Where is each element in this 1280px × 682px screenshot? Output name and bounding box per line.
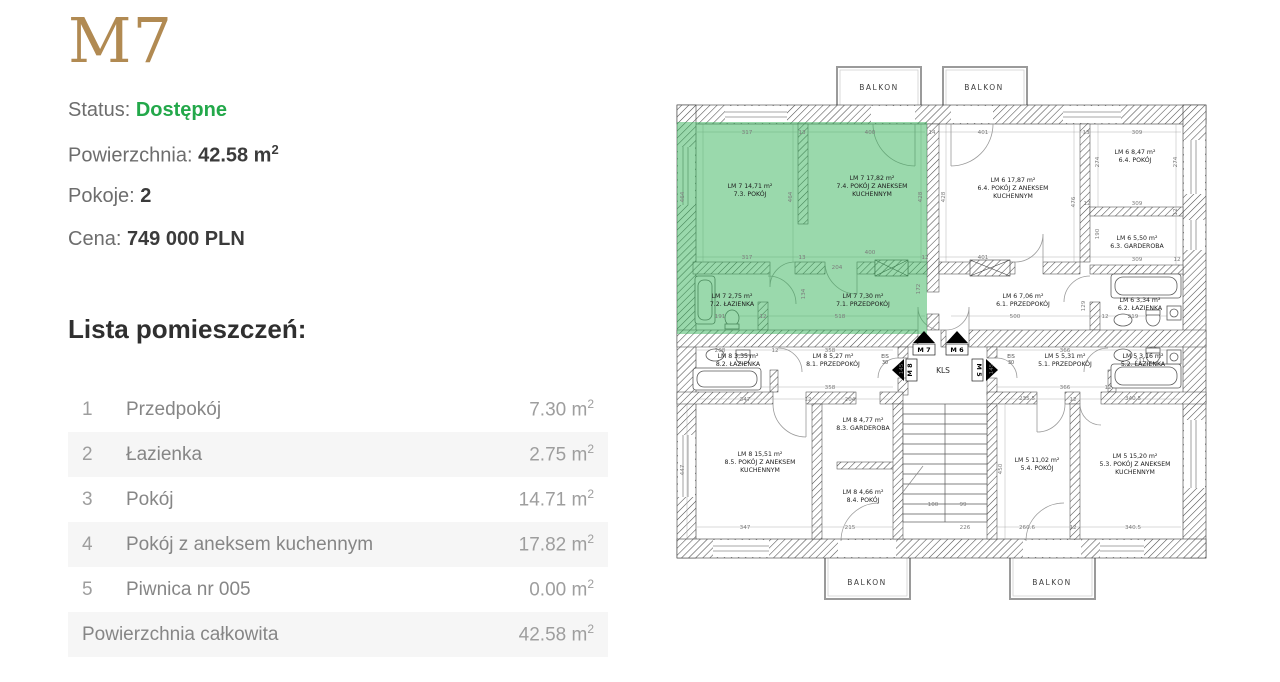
room-label: 6.1. PRZEDPOKÓJ [996,299,1050,308]
dimension-label: 400 [865,250,876,256]
dimension-label: 190 [1095,228,1101,239]
table-row: 5 Piwnica nr 005 0.00 m2 [68,567,608,612]
dimension-label: 447 [680,464,686,475]
room-label: 8.5. POKÓJ Z ANEKSEM [725,457,796,466]
dimension-label: 428 [941,191,947,202]
dimension-label: 12 [1069,397,1076,403]
area-line: Powierzchnia: 42.58 m2 [68,142,608,168]
room-label: LM 5 11,02 m² [1015,457,1060,464]
dimension-label: 191 [715,314,726,320]
total-area: 42.58 m2 [519,622,594,646]
dimension-label: 518 [835,314,846,320]
room-label: LM 7 17,82 m² [850,175,895,182]
rooms-label: Pokoje: [68,185,135,207]
area-value: 42.58 m [198,145,271,167]
room-label: 8.2. ŁAZIENKA [716,361,761,368]
room-label: LM 7 2,75 m² [712,293,753,300]
row-name: Piwnica nr 005 [126,579,529,601]
dimension-label: 317 [742,255,753,261]
price-value: 749 000 PLN [127,228,245,250]
room-label: 6.4. POKÓJ Z ANEKSEM [978,183,1049,192]
room-label: LM 7 7,30 m² [843,293,884,300]
room-label: LM 7 14,71 m² [728,183,773,190]
dimension-label: 464 [788,191,794,202]
dimension-label: 309 [1132,130,1143,136]
status-label: Status: [68,99,130,121]
status-value: Dostępne [136,99,227,121]
room-label: 7.2. ŁAZIENKA [710,301,755,308]
room-label: LM 5 5,31 m² [1045,353,1086,360]
room-label: LM 8 4,77 m² [843,417,884,424]
dimension-label: 172 [916,284,922,295]
row-name: Przedpokój [126,399,529,421]
dimension-label: 12 [1104,385,1111,391]
dimension-label: 500 [1010,314,1021,320]
room-label: LM 6 7,06 m² [1003,293,1044,300]
room-label: KUCHENNYM [993,193,1033,200]
dimension-label: 317 [742,130,753,136]
total-label: Powierzchnia całkowita [82,624,519,646]
dimension-label: 401 [978,130,989,136]
dimension-label: 215 [845,525,856,531]
dimension-label: 428 [918,191,924,202]
dimension-label: 12 [759,314,766,320]
table-row: 4 Pokój z aneksem kuchennym 17.82 m2 [68,522,608,567]
room-label: LM 8 15,51 m² [738,451,783,458]
dimension-label: 260.6 [1019,525,1035,531]
balcony-label: BALKON [859,83,898,92]
room-label: LM 6 17,87 m² [991,177,1036,184]
dimension-label: 145 [989,363,995,374]
row-number: 2 [82,444,126,466]
apartment-logo: M7 [68,6,173,76]
floor-plan: 3171340014401133094644644284284762742741… [675,62,1215,618]
room-label: 7.1. PRZEDPOKÓJ [836,299,890,308]
dimension-label: 129 [1081,300,1087,311]
dimension-label: 219 [1128,314,1139,320]
row-number: 1 [82,399,126,421]
dimension-label: 347 [740,397,751,403]
room-label: LM 6 3,34 m² [1120,297,1161,304]
dimension-label: 274 [1095,156,1101,167]
dimension-label: 14 [928,130,936,136]
balcony-label: BALKON [964,83,1003,92]
area-label: Powierzchnia: [68,145,193,167]
eis-label: EIS [881,354,889,360]
row-name: Pokój z aneksem kuchennym [126,534,519,556]
dimension-label: 235.5 [1019,396,1035,402]
dimension-label: 274 [1173,156,1179,167]
room-label: 5.2. ŁAZIENKA [1121,361,1166,368]
dimension-label: 100 [928,502,939,508]
table-row: 1 Przedpokój 7.30 m2 [68,387,608,432]
dimension-label: 309 [1132,257,1143,263]
price-label: Cena: [68,228,121,250]
row-number: 5 [82,579,126,601]
rooms-line: Pokoje: 2 [68,185,608,208]
dimension-label: 476 [1071,196,1077,207]
room-label: 8.3. GARDEROBA [836,425,890,432]
row-number: 4 [82,534,126,556]
row-area: 17.82 m2 [519,532,594,556]
area-sup: 2 [271,142,278,157]
entry-marker-label: M 5 [975,363,983,377]
room-label: 7.4. POKÓJ Z ANEKSEM [837,181,908,190]
room-label: 5.3. POKÓJ Z ANEKSEM [1100,459,1171,468]
eis-label: EIS [1007,354,1015,360]
entry-marker-label: M 6 [950,346,964,354]
staircase [903,404,987,522]
room-label: KUCHENNYM [852,191,892,198]
dimension-label: 12 [1083,201,1090,207]
room-label: LM 8 5,27 m² [813,353,854,360]
dimension-label: 12 [1101,314,1108,320]
row-name: Pokój [126,489,519,511]
floor-plan-svg: 3171340014401133094644644284284762742741… [675,62,1215,618]
table-total-row: Powierzchnia całkowita 42.58 m2 [68,612,608,657]
entry-marker-label: M 8 [906,363,914,377]
dimension-label: 12 [1173,257,1180,263]
dimension-label: 226 [960,525,971,531]
rooms-table: 1 Przedpokój 7.30 m2 2 Łazienka 2.75 m2 … [68,387,608,657]
dimension-label: 12 [771,348,778,354]
room-label: KUCHENNYM [1115,469,1155,476]
room-label: LM 6 5,50 m² [1117,235,1158,242]
room-label: 8.4. POKÓJ [847,495,880,504]
dimension-label: 134 [801,288,807,299]
room-label: 6.3. GARDEROBA [1110,243,1164,250]
dimension-label: 204 [845,397,856,403]
dimension-label: 12 [921,255,928,261]
room-label: LM 8 4,66 m² [843,489,884,496]
eis-label: 30 [1008,360,1014,366]
dimension-label: 204 [832,265,843,271]
rooms-list-heading: Lista pomieszczeń: [68,314,306,345]
room-label: LM 5 3,16 m² [1123,353,1164,360]
dimension-label: 366 [1060,385,1071,391]
room-label: LM 5 15,20 m² [1113,453,1158,460]
room-label: 6.2. ŁAZIENKA [1118,305,1163,312]
dimension-label: 13 [1082,130,1090,136]
room-label: LM 8 3,35 m² [718,353,759,360]
room-label: 5.4. POKÓJ [1021,463,1054,472]
balcony-label: BALKON [847,578,886,587]
rooms-value: 2 [140,185,151,207]
table-row: 2 Łazienka 2.75 m2 [68,432,608,477]
dimension-label: 450 [998,463,1004,474]
row-area: 0.00 m2 [529,577,594,601]
status-line: Status: Dostępne [68,99,608,122]
row-area: 2.75 m2 [529,442,594,466]
dimension-label: 464 [680,191,686,202]
dimension-label: 13 [798,130,806,136]
table-row: 3 Pokój 14.71 m2 [68,477,608,522]
dimension-label: 12 [804,397,811,403]
row-area: 14.71 m2 [519,487,594,511]
room-label: 6.4. POKÓJ [1119,155,1152,164]
price-line: Cena: 749 000 PLN [68,228,608,251]
dimension-label: 400 [865,130,876,136]
dimension-label: 401 [978,255,989,261]
dimension-label: 13 [798,255,806,261]
row-name: Łazienka [126,444,529,466]
dimension-label: 358 [825,385,836,391]
room-label: KUCHENNYM [740,467,780,474]
dimension-label: 12 [1069,525,1076,531]
dimension-label: 347 [740,525,751,531]
room-label: 8.1. PRZEDPOKÓJ [806,359,860,368]
dimension-label: 12 [1173,208,1179,215]
eis-label: 30 [882,360,888,366]
row-area: 7.30 m2 [529,397,594,421]
dimension-label: 309 [1132,201,1143,207]
dimension-label: 145 [899,363,905,374]
dimension-label: 340.5 [1125,396,1141,402]
room-label: 7.3. POKÓJ [734,189,767,198]
room-label: 5.1. PRZEDPOKÓJ [1038,359,1092,368]
room-label: LM 6 8,47 m² [1115,149,1156,156]
staircase-label: KLS [936,366,950,375]
dimension-label: 340.5 [1125,525,1141,531]
entry-marker-label: M 7 [917,346,930,354]
row-number: 3 [82,489,126,511]
dimension-label: 99 [959,502,967,508]
balcony-label: BALKON [1032,578,1071,587]
